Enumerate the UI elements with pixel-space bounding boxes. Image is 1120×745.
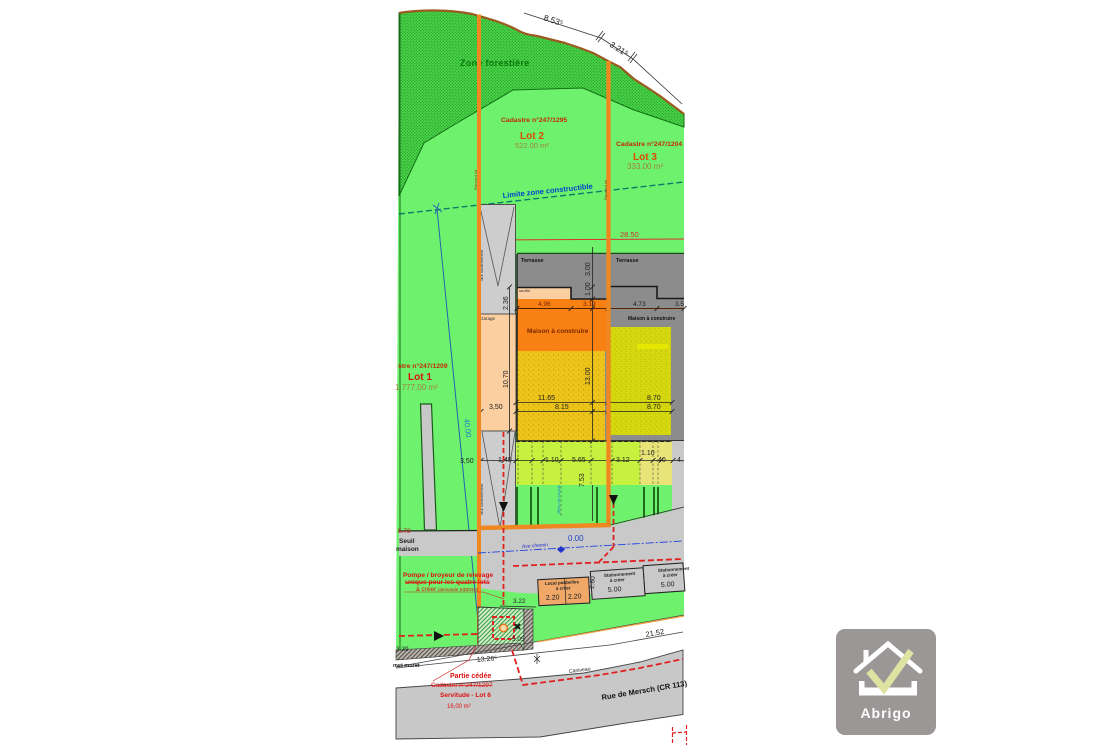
svg-text:met muret: met muret xyxy=(393,663,420,669)
svg-text:Terrasse: Terrasse xyxy=(521,258,544,264)
svg-text:Raccord lot: Raccord lot xyxy=(473,169,478,190)
svg-text:Pompe / broyeur de relevage: Pompe / broyeur de relevage xyxy=(403,572,493,579)
svg-text:Garage: Garage xyxy=(480,316,496,321)
svg-text:3,50: 3,50 xyxy=(460,458,474,465)
svg-text:3,50: 3,50 xyxy=(489,404,503,411)
svg-text:Raccord lot: Raccord lot xyxy=(603,179,608,200)
svg-text:5.00: 5.00 xyxy=(661,581,675,589)
svg-text:3.22: 3.22 xyxy=(513,598,526,605)
svg-text:Terrasse: Terrasse xyxy=(616,258,639,264)
svg-text:4.96: 4.96 xyxy=(538,301,551,308)
svg-text:Cadastre n°247/1297: Cadastre n°247/1297 xyxy=(431,681,493,689)
svg-text:Lot 1: Lot 1 xyxy=(408,372,432,383)
svg-text:Maison à construire: Maison à construire xyxy=(628,316,675,322)
svg-text:3.00: 3.00 xyxy=(585,262,592,276)
svg-text:Cadastre n°247/1295: Cadastre n°247/1295 xyxy=(501,116,567,124)
svg-text:8.70: 8.70 xyxy=(647,404,661,411)
svg-text:à créer: à créer xyxy=(610,577,625,583)
svg-text:Seuil: Seuil xyxy=(399,538,415,545)
svg-text:seuille: seuille xyxy=(519,288,531,293)
svg-text:stre n°247/1209: stre n°247/1209 xyxy=(398,362,448,370)
svg-text:8.70: 8.70 xyxy=(647,395,661,402)
svg-text:8.15: 8.15 xyxy=(555,404,569,411)
svg-text:1.10: 1.10 xyxy=(545,457,559,464)
svg-text:28.50: 28.50 xyxy=(620,230,639,239)
svg-text:11.65: 11.65 xyxy=(538,395,555,402)
svg-text:à créer: à créer xyxy=(663,572,678,578)
svg-text:Zone forestière: Zone forestière xyxy=(460,58,530,68)
svg-text:4.: 4. xyxy=(677,457,683,464)
svg-text:522.00 m²: 522.00 m² xyxy=(515,141,549,150)
svg-text:3.39: 3.39 xyxy=(396,646,409,653)
svg-text:5.65: 5.65 xyxy=(572,457,586,464)
svg-text:4.73: 4.73 xyxy=(633,301,646,308)
svg-text:333,00 m²: 333,00 m² xyxy=(627,162,663,171)
svg-text:2.60: 2.60 xyxy=(589,576,597,589)
svg-text:à créer: à créer xyxy=(556,585,571,591)
svg-text:1.777,00 m²: 1.777,00 m² xyxy=(395,383,438,392)
svg-text:2.20: 2.20 xyxy=(546,594,560,602)
svg-text:7.53: 7.53 xyxy=(579,473,586,487)
svg-text:Maison à construire: Maison à construire xyxy=(527,328,589,335)
svg-text:3.5: 3.5 xyxy=(675,301,684,308)
svg-text:3.12: 3.12 xyxy=(616,457,630,464)
svg-text:Partie cédée: Partie cédée xyxy=(450,673,491,680)
svg-text:Abrigo: Abrigo xyxy=(860,705,911,721)
svg-text:2.36: 2.36 xyxy=(503,296,510,310)
svg-text:2.20: 2.20 xyxy=(568,593,582,601)
svg-text:Servitude - Lot 6: Servitude - Lot 6 xyxy=(440,692,491,699)
svg-text:13.00: 13.00 xyxy=(585,367,592,385)
svg-text:unique pour les quatre lots: unique pour les quatre lots xyxy=(405,579,490,586)
svg-text:10.70: 10.70 xyxy=(503,370,510,388)
svg-text:Cadastre n°247/1204: Cadastre n°247/1204 xyxy=(616,140,682,148)
svg-text:1.40: 1.40 xyxy=(498,457,512,464)
svg-text:16,00 m²: 16,00 m² xyxy=(447,704,471,710)
svg-text:1.10: 1.10 xyxy=(641,450,655,457)
svg-text:5.72: 5.72 xyxy=(398,528,411,535)
svg-text:5.05: 5.05 xyxy=(512,636,525,643)
svg-text:Milieu de façade: Milieu de façade xyxy=(556,484,561,514)
svg-text:maison: maison xyxy=(396,546,419,553)
svg-text:5.00: 5.00 xyxy=(608,586,622,594)
svg-text:0.00: 0.00 xyxy=(568,534,584,543)
